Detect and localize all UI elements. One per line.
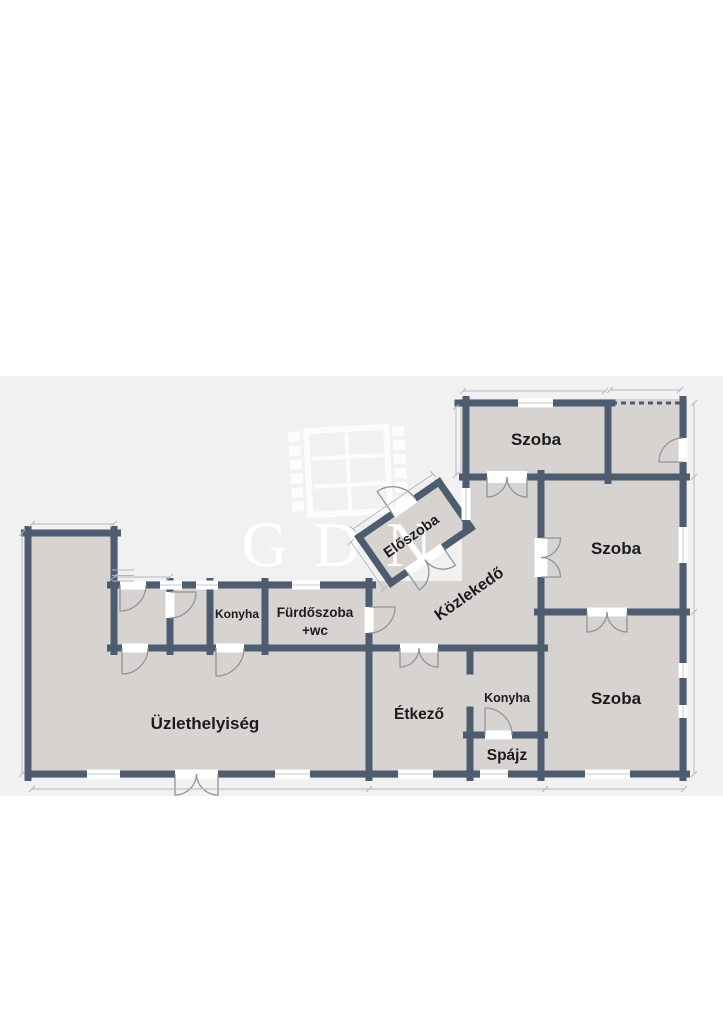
floor-plan-page: GDN <box>0 0 723 1024</box>
floor-plan-image: GDN <box>0 0 723 1024</box>
room-label-konyha-bottom: Konyha <box>484 691 531 705</box>
floor-corridor-upper <box>462 477 545 589</box>
room-label-szoba-middle: Szoba <box>591 539 642 558</box>
room-label-etkezo: Étkező <box>394 706 444 723</box>
room-label-furdoszoba: Fürdőszoba <box>277 605 354 620</box>
room-label-spajz: Spájz <box>487 747 528 764</box>
floor-corridor-lower <box>365 581 545 652</box>
room-label-konyha-small: Konyha <box>215 607 259 621</box>
room-label-furdoszoba-wc: +wc <box>302 623 328 638</box>
floor-szoba-top <box>460 399 687 481</box>
floor-uzlet-main <box>28 644 373 778</box>
room-label-szoba-bottom: Szoba <box>591 689 642 708</box>
room-label-uzlethelyiseg: Üzlethelyiség <box>151 714 260 733</box>
room-label-szoba-top: Szoba <box>511 430 562 449</box>
